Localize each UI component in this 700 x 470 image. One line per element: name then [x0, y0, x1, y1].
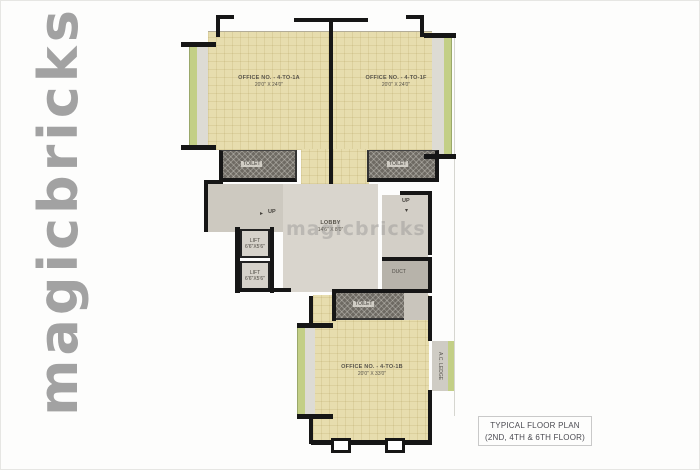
office-bottom-dims: 20'0" X 33'0": [321, 371, 423, 379]
ledge-strip-left: [197, 47, 208, 147]
balcony-strip-right: [444, 38, 452, 156]
door-opening-left: [331, 438, 351, 453]
toilet-right-label: TOILET: [387, 161, 408, 167]
watermark-center-text: magicbricks: [286, 218, 426, 242]
office-top-right-label: OFFICE NO. - 4-TO-1F: [345, 74, 447, 82]
wall-segment: [329, 18, 333, 184]
ledge-strip-bottom-left: [305, 328, 315, 416]
balcony-strip-ac: [448, 341, 454, 391]
balcony-strip-left: [189, 47, 197, 147]
wall-segment: [311, 440, 432, 445]
lift-shaft-bottom: LIFT 6'6"X5'6": [240, 261, 270, 291]
balcony-strip-bottom-left: [297, 328, 305, 416]
wall-segment: [181, 145, 216, 150]
duct-label: DUCT: [384, 269, 414, 275]
wall-segment: [181, 42, 216, 47]
stairs-arrow-icon: ▾: [405, 208, 408, 214]
ledge-strip-right: [432, 38, 444, 156]
wall-segment: [428, 390, 432, 444]
wall-segment: [428, 195, 432, 255]
wall-segment: [297, 323, 333, 328]
passage-area: [208, 184, 283, 232]
wall-segment: [382, 257, 432, 261]
wall-segment: [235, 288, 291, 292]
office-top-left-dims: 20'0" X 24'0": [218, 82, 320, 90]
wall-segment: [428, 296, 432, 341]
title-box: TYPICAL FLOOR PLAN (2ND, 4TH & 6TH FLOOR…: [478, 416, 592, 446]
entry-up-label: UP: [268, 209, 276, 215]
wall-segment: [332, 289, 432, 293]
entry-arrow-icon: ▸: [260, 211, 263, 217]
lift-bottom-dims: 6'6"X5'6": [245, 276, 265, 282]
wall-segment: [297, 414, 333, 419]
office-top-right-text: OFFICE NO. - 4-TO-1F 20'0" X 24'0": [345, 74, 447, 90]
office-top-floor-area: [208, 31, 432, 150]
door-opening-right: [385, 438, 405, 453]
toilet-bottom-label: TOILET: [353, 301, 374, 307]
office-bottom-text: OFFICE NO. - 4-TO-1B 20'0" X 33'0": [321, 363, 423, 379]
lift-shaft-top: LIFT 6'6"X5'6": [240, 229, 270, 258]
office-top-right-dims: 20'0" X 24'0": [345, 82, 447, 90]
toilet-left-label: TOILET: [241, 161, 262, 167]
title-line1: TYPICAL FLOOR PLAN: [479, 420, 591, 432]
lift-top-dims: 6'6"X5'6": [245, 244, 265, 250]
wall-segment: [235, 227, 240, 293]
wall-segment: [216, 15, 220, 37]
office-top-left-text: OFFICE NO. - 4-TO-1A 20'0" X 24'0": [218, 74, 320, 90]
ac-ledge-area: A.C. LEDGE: [432, 341, 448, 391]
wall-segment: [424, 33, 456, 38]
floor-plan: TOILET TOILET LOBBY 14'6" X 8'0" ▸ UP LI…: [1, 1, 700, 470]
wall-segment: [204, 184, 208, 232]
office-top-left-label: OFFICE NO. - 4-TO-1A: [218, 74, 320, 82]
plan-boundary-line: [454, 34, 455, 416]
title-line2: (2ND, 4TH & 6TH FLOOR): [479, 432, 591, 444]
duct-area: [382, 261, 428, 292]
wall-segment: [424, 154, 456, 159]
toilet-bottom-gray-area: [404, 293, 428, 320]
stairs-up-label: UP: [402, 198, 410, 204]
wall-segment: [270, 227, 274, 293]
office-mid-strip-area: [301, 149, 369, 184]
page-frame: magicbricks TOILET TOILET LOBBY 14'6" X …: [0, 0, 700, 470]
wall-segment: [332, 289, 336, 321]
office-bottom-label: OFFICE NO. - 4-TO-1B: [321, 363, 423, 371]
ac-ledge-label: A.C. LEDGE: [432, 341, 448, 391]
